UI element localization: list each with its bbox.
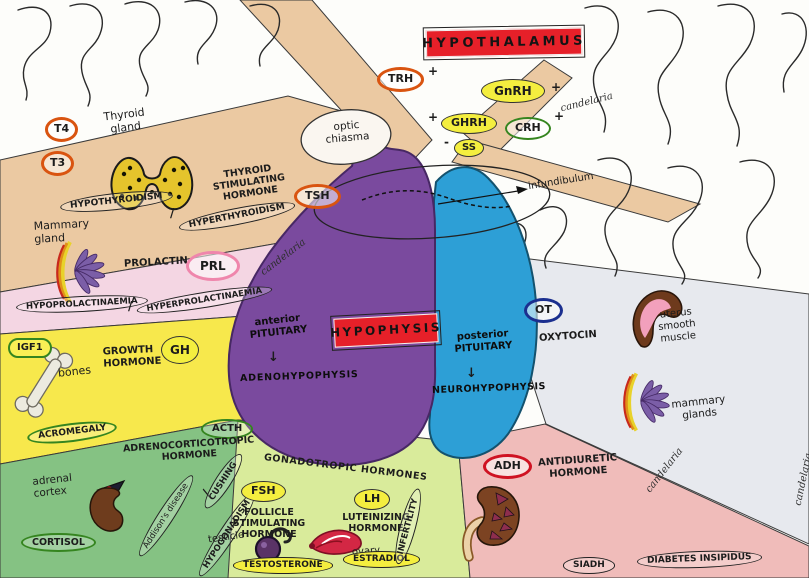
anterior-arrow: ↓	[268, 350, 279, 365]
ghrh-plus-sign: +	[428, 110, 438, 124]
infundibulum-pointer-head	[516, 186, 528, 194]
testosterone-oval: TESTOSTERONE	[233, 557, 333, 574]
cortisol-oval: CORTISOL	[21, 533, 96, 552]
ot-badge: OT	[524, 298, 563, 323]
uterus-target-label: uterus smooth muscle	[646, 305, 707, 346]
ss-minus-sign: -	[444, 135, 449, 149]
adh-badge: ADH	[483, 454, 532, 479]
hypothalamus-title: HYPOTHALAMUS	[426, 28, 582, 58]
fsh-badge: FSH	[241, 481, 286, 502]
thyroid-slash: /	[170, 206, 174, 220]
t4-badge: T4	[45, 117, 78, 142]
trh-badge: TRH	[377, 67, 424, 92]
growth-hormone-label: GROWTH HORMONE	[102, 343, 167, 370]
mindmap-canvas: HYPOTHALAMUS TRH + GnRH + + GHRH - SS CR…	[0, 0, 809, 578]
gh-badge: GH	[161, 336, 199, 364]
gnrh-plus-sign: +	[551, 80, 561, 94]
gnrh-badge: GnRH	[481, 79, 545, 103]
ss-badge: SS	[454, 139, 484, 157]
siadh-oval: SIADH	[563, 557, 615, 574]
igf1-badge: IGF1	[8, 338, 52, 358]
prl-badge: PRL	[186, 251, 240, 281]
t3-badge: T3	[41, 151, 74, 176]
hypophysis-title: HYPOPHYSIS	[333, 313, 438, 347]
ghrh-badge: GHRH	[441, 113, 497, 134]
prolactin-slash: /	[128, 299, 132, 313]
lh-badge: LH	[354, 489, 390, 510]
trh-plus-sign: +	[428, 64, 438, 78]
mammary-gland-label: Mammary gland	[33, 217, 100, 246]
posterior-pituitary-label: posterior PITUITARY	[449, 328, 516, 356]
tsh-badge: TSH	[294, 184, 341, 209]
posterior-lobe-shape	[429, 167, 537, 458]
crh-badge: CRH	[505, 117, 551, 140]
estradiol-oval: ESTRADIOL	[343, 551, 420, 568]
posterior-arrow: ↓	[466, 366, 477, 381]
